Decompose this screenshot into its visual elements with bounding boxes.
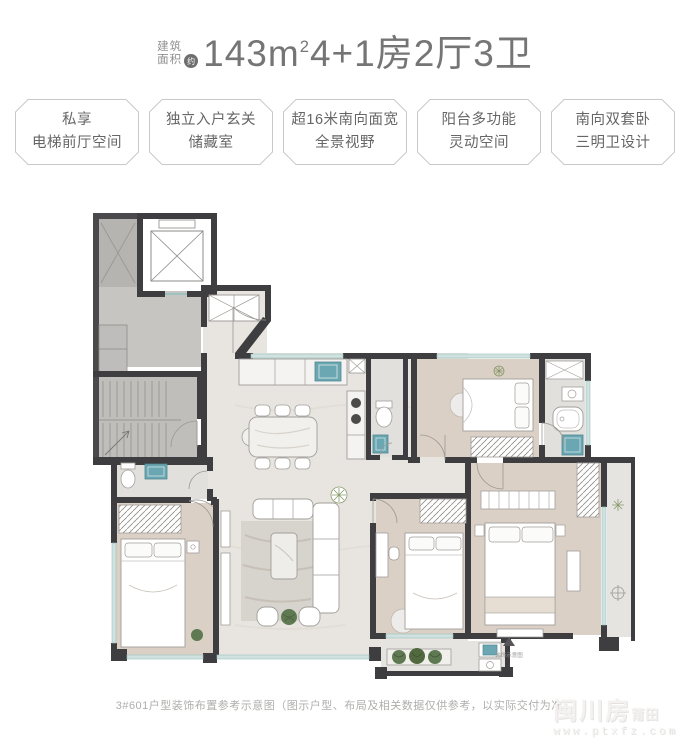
- dining-chair: [295, 405, 310, 416]
- badge-line1: 南向双套卧: [576, 109, 651, 132]
- toilet: [376, 407, 392, 427]
- stairwell-floor: [97, 377, 197, 459]
- dining-chair: [295, 458, 310, 469]
- plant: [191, 629, 203, 641]
- area-label: 建筑 面积: [157, 41, 182, 68]
- burner: [351, 414, 361, 424]
- ensuite-window: [586, 381, 590, 445]
- coffee-table: [271, 533, 297, 579]
- dining-chair: [255, 405, 270, 416]
- balcony-slider: [386, 634, 453, 638]
- badge-private-elevator-hall: 私享电梯前厅空间: [15, 99, 139, 165]
- watermark-brand: 闽川房: [553, 698, 631, 725]
- pillow: [522, 527, 553, 542]
- area-label-line2: 面积: [157, 54, 182, 68]
- floorplan-poster: 建筑 面积 约 143m24+1房2厅3卫 私享电梯前厅空间 独立入户玄关储藏室…: [0, 0, 690, 752]
- bed-throw: [485, 597, 555, 613]
- armchair: [299, 607, 320, 626]
- pillow: [125, 543, 152, 557]
- area-label-line1: 建筑: [157, 41, 182, 55]
- bathtub: [553, 407, 583, 431]
- tv-console: [221, 553, 230, 625]
- cabinet: [479, 659, 501, 671]
- pillow: [515, 407, 529, 428]
- armchair: [257, 607, 278, 626]
- north-bedroom-window: [437, 354, 530, 358]
- badge-line2: 全景视野: [315, 132, 375, 155]
- sofa: [253, 499, 313, 519]
- wardrobe-hangers: [481, 491, 555, 509]
- badge-multifunction-balcony: 阳台多功能灵动空间: [417, 99, 541, 165]
- kitchen-window: [251, 354, 343, 358]
- tv-console: [221, 511, 230, 547]
- approx-circle-badge: 约: [184, 54, 198, 68]
- pillow: [409, 537, 434, 550]
- badge-line2: 灵动空间: [449, 132, 509, 155]
- burner: [351, 398, 361, 408]
- watermark-brand-suffix: 莆田: [631, 707, 659, 722]
- desk-chair: [389, 547, 399, 560]
- pillow: [489, 527, 520, 542]
- toilet: [121, 470, 135, 488]
- badge-line2: 储藏室: [189, 132, 234, 155]
- badge-line1: 私享: [62, 109, 92, 132]
- dresser: [567, 551, 580, 591]
- bed-bench: [497, 629, 543, 637]
- page-title: 143m24+1房2厅3卫: [203, 34, 533, 75]
- chaise-sofa: [313, 503, 339, 613]
- south-glazing-left: [127, 655, 203, 659]
- badge-entry-foyer-storage: 独立入户玄关储藏室: [149, 99, 273, 165]
- dining-table: [249, 417, 317, 457]
- closet: [577, 463, 599, 517]
- dining-chair: [275, 405, 290, 416]
- wardrobe: [119, 505, 181, 533]
- badge-line1: 阳台多功能: [442, 109, 517, 132]
- dining-chair: [255, 458, 270, 469]
- nightstand: [475, 525, 484, 536]
- badge-double-suite: 南向双套卧三明卫设计: [551, 99, 675, 165]
- watermark: 闽川房莆田 www.ptxfz.com: [553, 700, 678, 738]
- plant-stand: [331, 487, 347, 503]
- floorplan-drawing: 装饰示意图: [85, 205, 645, 685]
- compass-caption: 装饰示意图: [495, 651, 523, 659]
- plant-symbol: [494, 366, 504, 376]
- nightstand: [187, 541, 199, 553]
- badge-line1: 超16米南向面宽: [291, 109, 398, 132]
- nightstand: [556, 525, 565, 536]
- title-layout-text: 4+1房2厅3卫: [310, 33, 533, 74]
- pillow: [436, 537, 461, 550]
- wardrobe: [420, 499, 466, 523]
- living-glazing: [217, 655, 369, 659]
- badge-line2: 三明卫设计: [576, 132, 651, 155]
- feature-badges-row: 私享电梯前厅空间 独立入户玄关储藏室 超16米南向面宽全景视野 阳台多功能灵动空…: [0, 99, 690, 165]
- side-balcony-slider: [602, 507, 606, 625]
- vanity-sink: [562, 387, 583, 401]
- watermark-url: www.ptxfz.com: [553, 727, 678, 738]
- badge-line2: 电梯前厅空间: [32, 132, 122, 155]
- badge-south-facing-width: 超16米南向面宽全景视野: [283, 99, 407, 165]
- dining-chair: [275, 458, 290, 469]
- side-balcony-floor: [607, 463, 631, 637]
- pillow: [154, 543, 181, 557]
- desk: [376, 533, 388, 577]
- title-superscript: 2: [300, 37, 310, 56]
- pillow: [515, 383, 529, 404]
- title-area-number: 143m: [203, 33, 300, 74]
- plant: [409, 648, 425, 664]
- left-bedroom-window: [112, 543, 116, 643]
- header: 建筑 面积 约 143m24+1房2厅3卫: [0, 34, 690, 75]
- wardrobe: [471, 437, 533, 457]
- badge-line1: 独立入户玄关: [166, 109, 256, 132]
